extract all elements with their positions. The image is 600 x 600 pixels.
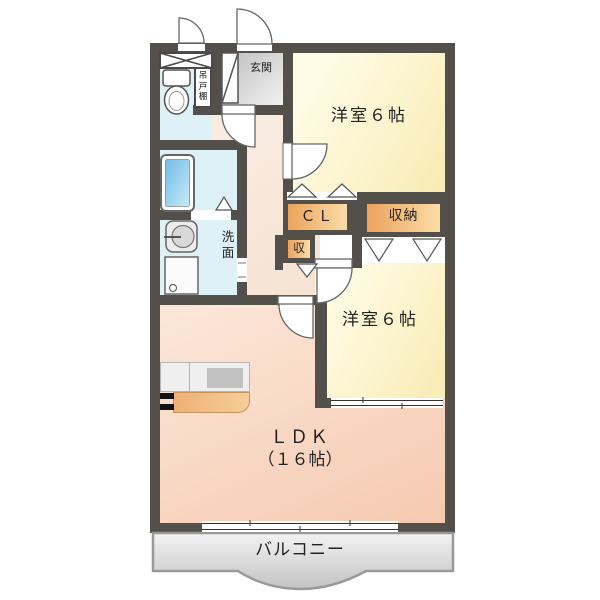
closet-folding-door-right — [328, 184, 356, 197]
washbasin — [164, 221, 197, 252]
storage-small-label: 収 — [283, 241, 315, 255]
entrance-door-arc — [237, 9, 272, 44]
ldk-balcony-window — [202, 520, 398, 532]
floor-plan: 吊戸棚 — [0, 0, 600, 600]
shoe-cabinet — [222, 53, 238, 103]
washroom-sliding-door — [237, 258, 247, 282]
storage-small-folding-door — [297, 264, 317, 277]
ldk-size-label: （１６帖） — [200, 450, 400, 470]
closet-label: ＣＬ — [283, 207, 352, 225]
top-small-door-arc — [179, 18, 204, 43]
storage-folding-door-right — [413, 239, 441, 261]
shelf-x-box — [160, 53, 212, 68]
storage-label: 収納 — [362, 208, 445, 225]
top-wall-gap-entrance — [237, 44, 272, 51]
storage-folding-door-left — [365, 239, 393, 261]
toilet-fixture — [163, 70, 190, 114]
bedroom-top-door-arc — [292, 144, 327, 179]
ldk-label: ＬＤＫ — [200, 427, 400, 449]
bedroom-right-sliding-door — [331, 397, 443, 409]
bedroom-right-label: 洋室６帖 — [315, 310, 445, 330]
bedroom-right-door-leaf — [315, 259, 352, 268]
washroom-label: 洗面 — [220, 229, 236, 260]
balcony-label: バルコニー — [200, 540, 400, 560]
top-wall-gap-small — [178, 44, 205, 51]
bathroom-folding-door — [216, 197, 232, 210]
bathroom-door-gap — [191, 210, 231, 220]
bedroom-top-label: 洋室６帖 — [293, 106, 445, 126]
hall-door-arc — [222, 114, 255, 147]
washing-machine — [165, 257, 198, 294]
entrance-label: 玄関 — [240, 61, 282, 74]
ldk-door-arc — [279, 304, 313, 338]
bedroom-right-door-arc — [317, 268, 352, 303]
plan-symbols — [0, 0, 600, 600]
closet-folding-door-left — [288, 184, 316, 197]
bathtub — [161, 155, 194, 211]
